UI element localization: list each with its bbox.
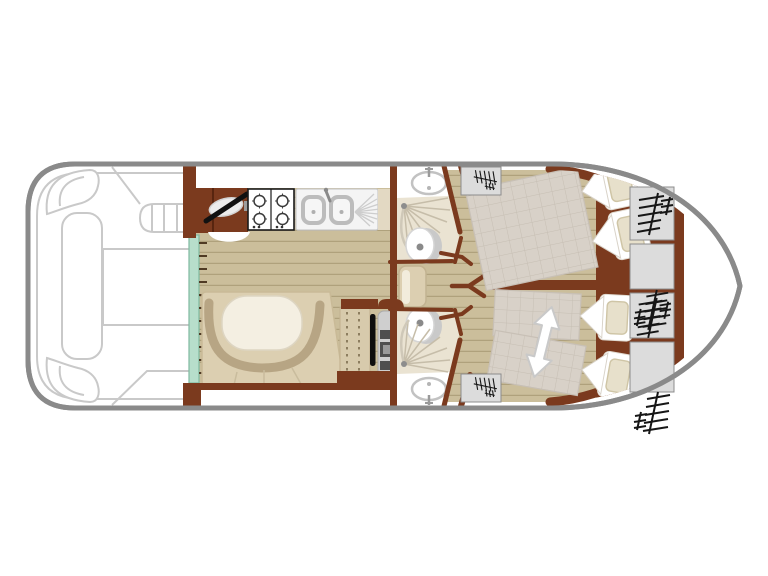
boat-floor-plan [0, 0, 768, 576]
wall-saloon-bathroom [390, 165, 397, 407]
sink-icon [296, 188, 390, 230]
steering-wheel-icon [370, 314, 376, 366]
wall-helm-rear [337, 371, 394, 390]
storage-box-2 [630, 244, 674, 289]
wall-bath-fore-rear [390, 261, 452, 262]
dinette [202, 292, 344, 385]
toilet-icon [406, 228, 442, 264]
sliding-door [189, 235, 199, 383]
counter-end [378, 189, 390, 230]
storage-box-4 [630, 342, 674, 392]
side-walkway-top [196, 167, 390, 188]
dinette-table [222, 296, 302, 350]
corridor-step [399, 266, 426, 307]
hob-icon [248, 189, 294, 230]
deck-table [103, 249, 191, 325]
stairs-hatch-icon [634, 392, 670, 434]
wall-saloon-front-top [183, 165, 196, 238]
side-walkway-bottom [192, 389, 390, 406]
toilet-icon [406, 308, 442, 344]
wall-bath-aft-front [390, 309, 452, 310]
wall-saloon-rear [186, 383, 338, 390]
deck-bench [62, 213, 102, 359]
helm-dashboard [341, 299, 378, 309]
floor-plan-canvas [0, 0, 768, 576]
